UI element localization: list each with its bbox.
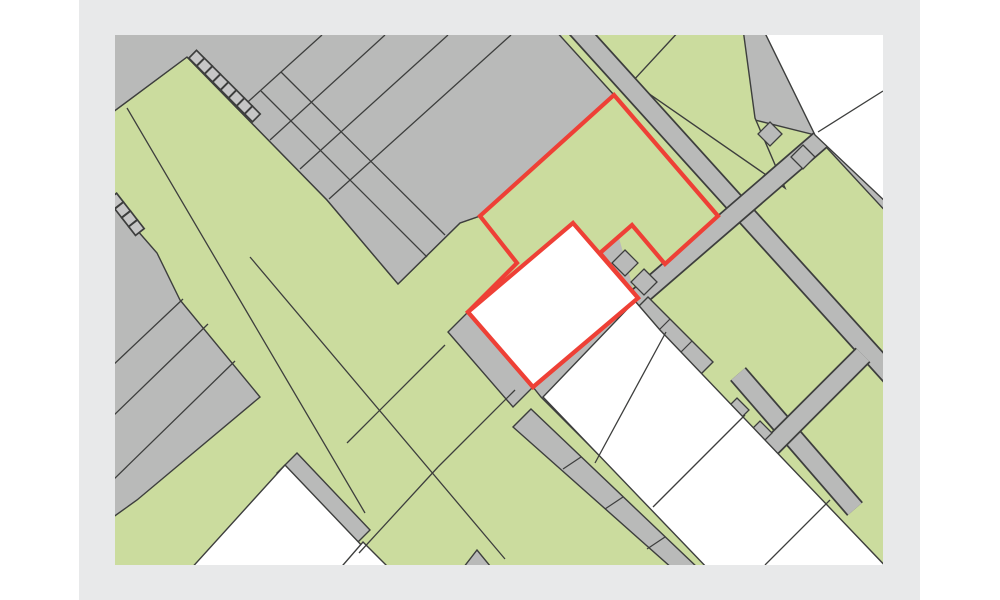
cadastral-map-svg[interactable] [115, 35, 883, 565]
map-viewport[interactable] [115, 35, 883, 565]
